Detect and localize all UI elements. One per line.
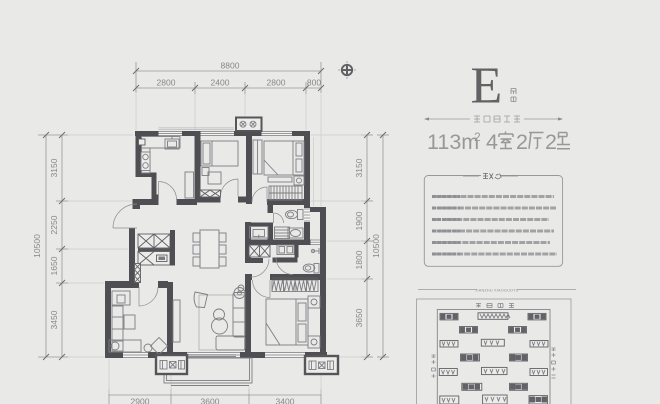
svg-text:2800: 2800 (267, 78, 286, 88)
svg-text:3600: 3600 (201, 397, 220, 404)
svg-text:JIANZHU XIAOGUOTU: JIANZHU XIAOGUOTU (475, 288, 518, 292)
svg-text:2: 2 (545, 130, 557, 154)
svg-text:10500: 10500 (371, 234, 381, 258)
svg-text:3450: 3450 (49, 310, 59, 329)
svg-text:1650: 1650 (49, 256, 59, 275)
svg-text:3400: 3400 (276, 397, 295, 404)
svg-text:3650: 3650 (354, 308, 364, 327)
svg-text:E: E (471, 58, 503, 115)
svg-text:800: 800 (307, 78, 321, 88)
svg-text:2900: 2900 (131, 397, 150, 404)
svg-text:1800: 1800 (354, 250, 364, 269)
svg-text:10500: 10500 (32, 234, 42, 258)
svg-text:113m: 113m (427, 130, 479, 154)
svg-text:2400: 2400 (211, 78, 230, 88)
svg-text:2: 2 (474, 130, 481, 144)
svg-text:8800: 8800 (221, 61, 240, 71)
svg-text:2: 2 (516, 130, 528, 154)
svg-text:3150: 3150 (49, 158, 59, 177)
svg-text:3150: 3150 (354, 158, 364, 177)
svg-text:1900: 1900 (354, 211, 364, 230)
svg-text:4: 4 (486, 130, 498, 154)
svg-text:2800: 2800 (157, 78, 176, 88)
svg-text:2250: 2250 (49, 215, 59, 234)
